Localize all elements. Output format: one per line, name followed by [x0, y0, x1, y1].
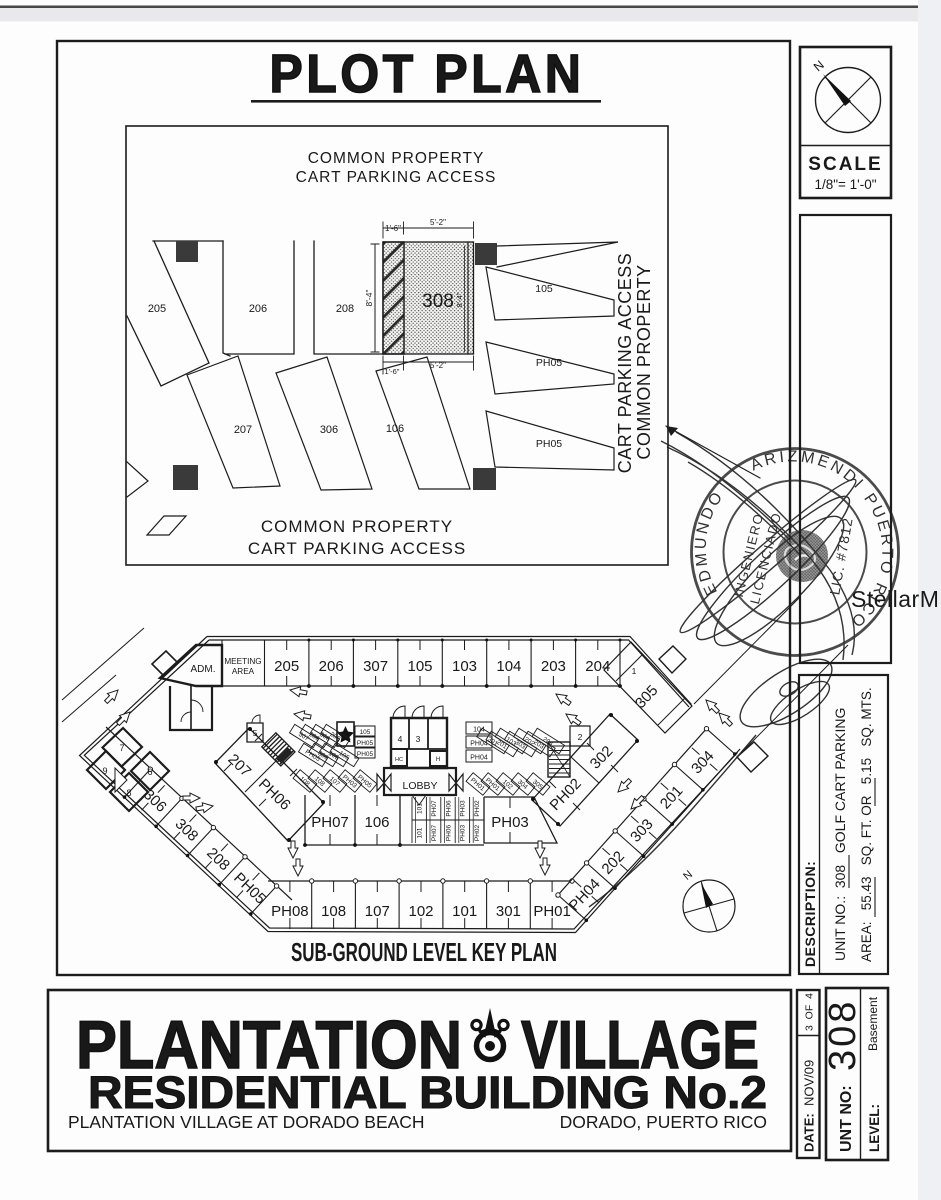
svg-text:PH04: PH04 [470, 755, 488, 762]
svg-text:102: 102 [408, 903, 433, 920]
svg-text:Basement: Basement [866, 996, 880, 1051]
svg-text:205: 205 [274, 658, 299, 675]
svg-text:CART PARKING ACCESS: CART PARKING ACCESS [615, 253, 635, 474]
svg-text:DATE: NOV/09: DATE: NOV/09 [802, 1060, 817, 1152]
svg-text:SCALE: SCALE [808, 154, 882, 175]
svg-text:SUB-GROUND LEVEL KEY PLAN: SUB-GROUND LEVEL KEY PLAN [291, 937, 557, 967]
svg-text:UNT NO:: UNT NO: [838, 1085, 855, 1152]
svg-text:101: 101 [417, 827, 424, 838]
svg-text:2: 2 [578, 732, 583, 742]
svg-text:5'-2": 5'-2" [430, 218, 446, 227]
svg-text:307: 307 [363, 658, 388, 675]
svg-text:108: 108 [321, 903, 346, 920]
svg-text:8: 8 [126, 788, 131, 798]
svg-text:308: 308 [422, 291, 454, 312]
svg-text:8'-4": 8'-4" [364, 290, 374, 307]
svg-text:207: 207 [234, 424, 252, 436]
svg-text:6: 6 [147, 767, 152, 777]
svg-text:PH08: PH08 [271, 903, 309, 920]
svg-text:5'-2": 5'-2" [430, 361, 446, 370]
svg-text:PH03: PH03 [491, 814, 529, 831]
svg-text:208: 208 [336, 303, 354, 315]
svg-text:1/8"= 1'-0": 1/8"= 1'-0" [814, 177, 876, 192]
svg-text:PLOT PLAN: PLOT PLAN [270, 44, 585, 104]
svg-text:PH06: PH06 [445, 824, 452, 841]
svg-text:RESIDENTIAL BUILDING No.2: RESIDENTIAL BUILDING No.2 [88, 1068, 767, 1118]
svg-text:PH05: PH05 [357, 751, 374, 758]
svg-text:PH03: PH03 [460, 824, 467, 841]
svg-text:HC: HC [395, 757, 403, 763]
svg-text:COMMON PROPERTY: COMMON PROPERTY [261, 517, 453, 536]
svg-text:COMMON PROPERTY: COMMON PROPERTY [308, 150, 485, 167]
svg-text:3: 3 [416, 734, 421, 744]
svg-text:8'-4": 8'-4" [455, 292, 464, 307]
svg-text:9: 9 [102, 766, 107, 776]
svg-text:105: 105 [535, 283, 553, 295]
svg-text:PH02: PH02 [474, 824, 481, 841]
svg-text:PH07: PH07 [431, 800, 438, 817]
svg-text:UNIT NO.: 308 GOLF CART PAR: UNIT NO.: 308 GOLF CART PARKING [832, 708, 848, 961]
svg-text:101: 101 [452, 903, 477, 920]
svg-text:105: 105 [407, 658, 432, 675]
svg-text:306: 306 [320, 424, 338, 436]
svg-text:103: 103 [452, 658, 477, 675]
svg-text:7: 7 [119, 743, 124, 753]
svg-text:PH02: PH02 [474, 800, 481, 817]
svg-text:4: 4 [398, 734, 403, 744]
svg-text:PH05: PH05 [536, 357, 562, 369]
svg-text:MEETING: MEETING [224, 657, 261, 666]
svg-text:3 OF 4: 3 OF 4 [804, 993, 816, 1031]
svg-text:COMMON PROPERTY: COMMON PROPERTY [634, 264, 654, 459]
svg-text:ADM.: ADM. [191, 664, 216, 675]
svg-text:PH07: PH07 [311, 814, 349, 831]
svg-text:CART PARKING ACCESS: CART PARKING ACCESS [248, 539, 466, 558]
svg-text:PH05: PH05 [536, 438, 562, 450]
svg-text:1: 1 [632, 666, 637, 676]
svg-text:PH06: PH06 [445, 800, 452, 817]
svg-text:LOBBY: LOBBY [402, 780, 437, 792]
svg-text:206: 206 [319, 658, 344, 675]
svg-text:205: 205 [148, 303, 166, 315]
svg-text:AREA: AREA [232, 667, 255, 676]
svg-text:AREA: 55.43 SQ. FT. OR 5: AREA: 55.43 SQ. FT. OR 5.15 SQ. MTS. [859, 687, 874, 962]
svg-text:101: 101 [417, 803, 424, 814]
svg-text:PH05: PH05 [357, 740, 374, 747]
svg-text:PH07: PH07 [431, 824, 438, 841]
svg-text:1'-6": 1'-6" [385, 224, 401, 233]
svg-text:LEVEL:: LEVEL: [867, 1104, 882, 1152]
svg-text:308: 308 [822, 999, 864, 1071]
svg-text:PH03: PH03 [460, 800, 467, 817]
svg-text:301: 301 [496, 903, 521, 920]
svg-text:DORADO, PUERTO RICO: DORADO, PUERTO RICO [560, 1112, 767, 1132]
svg-text:CART PARKING ACCESS: CART PARKING ACCESS [296, 169, 497, 186]
svg-text:206: 206 [249, 303, 267, 315]
svg-text:203: 203 [541, 658, 566, 675]
svg-text:105: 105 [360, 729, 371, 736]
svg-text:106: 106 [386, 423, 404, 435]
svg-text:PH01: PH01 [533, 903, 571, 920]
svg-text:104: 104 [496, 658, 521, 675]
svg-text:H: H [436, 757, 440, 763]
svg-text:5: 5 [253, 728, 258, 738]
svg-text:107: 107 [365, 903, 390, 920]
svg-text:PLANTATION VILLAGE AT DORADO B: PLANTATION VILLAGE AT DORADO BEACH [68, 1112, 425, 1132]
svg-text:106: 106 [364, 814, 389, 831]
svg-text:DESCRIPTION:: DESCRIPTION: [802, 861, 818, 967]
